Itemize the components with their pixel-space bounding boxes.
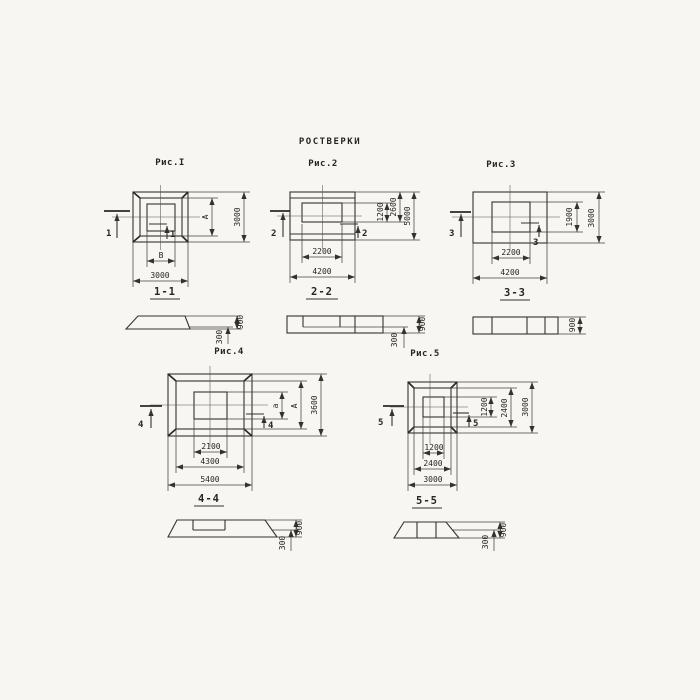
fig1-section-view: 1-1 900 300: [126, 286, 245, 344]
fig2-plan: [277, 185, 362, 249]
cut-label: 5: [473, 419, 478, 429]
fig2-section-view: 2-2 900 300: [287, 286, 427, 348]
chamfer-line: [133, 236, 140, 242]
chamfer-line: [408, 382, 414, 388]
chamfer-line: [408, 427, 414, 433]
fig1-title: Рис.I: [155, 158, 185, 168]
dim-value: 3000: [521, 397, 530, 416]
section-label: 5-5: [416, 495, 438, 507]
dim-value: 5400: [200, 475, 219, 484]
cut-label: 3: [449, 229, 454, 239]
fig2-cut-mark-inner: 2: [340, 224, 367, 239]
chamfer-line: [244, 429, 252, 436]
fig5-section-view: 5-5 900 300: [394, 495, 508, 551]
fig5-outer-contour: [408, 382, 457, 433]
dim-value: 1200: [376, 202, 385, 221]
dim-value: 3600: [310, 395, 319, 414]
cut-label: 2: [271, 229, 276, 239]
dim-value: 1900: [565, 207, 574, 226]
dim-value: А: [201, 214, 210, 219]
cut-label: 4: [268, 421, 274, 431]
fig4-dim-inner-width: 2100: [194, 419, 227, 458]
chamfer-line: [182, 192, 188, 198]
dim-value: 900: [499, 523, 508, 538]
dim-value: 1200: [480, 397, 489, 416]
dim-value: 4200: [500, 268, 519, 277]
dim-value: 2400: [423, 459, 442, 468]
dim-value: 900: [418, 317, 427, 332]
chamfer-line: [133, 192, 140, 198]
cut-label: 1: [106, 229, 111, 239]
dim-value: 3000: [233, 207, 242, 226]
chamfer-line: [168, 429, 176, 436]
figure-1: Рис.I 1 1 А: [104, 158, 250, 344]
fig4-cut-mark-inner: 4: [246, 414, 274, 431]
fig3-title: Рис.3: [486, 160, 516, 170]
dim-value: 900: [236, 315, 245, 330]
fig5-plan: [390, 374, 468, 444]
dim-value: 4300: [200, 457, 219, 466]
figure-2: Рис.2 2 2 1200 2600: [270, 159, 427, 348]
chamfer-line: [451, 427, 457, 433]
dim-value: 300: [481, 535, 490, 550]
fig3-dim-inner-width: 2200: [492, 232, 530, 264]
figure-5: Рис.5 5 5 1200: [378, 349, 538, 551]
fig4-cut-mark-left: 4: [138, 406, 162, 430]
dim-value: 4200: [312, 267, 331, 276]
fig2-dim-inner-width: 2200: [302, 224, 342, 263]
fig5-cut-mark-left: 5: [378, 406, 404, 428]
section-profile: [287, 316, 383, 333]
fig5-dim-inner-width: 1200: [423, 417, 444, 459]
fig4-section-view: 4-4 900 300: [168, 493, 304, 551]
dim-value: 300: [390, 333, 399, 348]
cut-label: 4: [138, 420, 144, 430]
section-profile: [168, 520, 277, 537]
dim-value: 3000: [150, 271, 169, 280]
dim-value: 2200: [312, 247, 331, 256]
fig5-title: Рис.5: [410, 349, 440, 359]
fig5-edge-band: [414, 388, 451, 427]
scanned-drawing-page: РОСТВЕРКИ Рис.I 1 1 А: [0, 0, 700, 700]
fig4-dim-inner-height: а: [227, 392, 288, 419]
fig2-cut-mark-left: 2: [270, 211, 290, 239]
dim-value: 5000: [403, 206, 412, 225]
dim-value: 300: [278, 536, 287, 551]
section-profile: [394, 522, 459, 538]
fig1-cut-mark-inner: 1: [149, 224, 175, 240]
fig3-dim-outer-height: 3000: [547, 192, 605, 243]
section-label: 2-2: [311, 286, 333, 298]
fig3-plan: [452, 185, 560, 250]
chamfer-line: [182, 236, 188, 242]
fig4-recess-opening: [194, 392, 227, 419]
dim-value: 2400: [500, 398, 509, 417]
section-profile: [126, 316, 190, 329]
fig2-recess-opening: [302, 203, 342, 222]
dim-value: 3000: [423, 475, 442, 484]
chamfer-line: [168, 374, 176, 381]
chamfer-line: [451, 382, 457, 388]
section-label: 4-4: [198, 493, 220, 505]
cut-label: 2: [362, 229, 367, 239]
cut-label: 5: [378, 418, 383, 428]
dim-value: 3000: [587, 208, 596, 227]
dim-value: 2600: [389, 197, 398, 216]
fig3-cut-mark-left: 3: [449, 212, 471, 239]
fig1-recess-opening: [147, 204, 175, 231]
cut-label: 3: [533, 238, 538, 248]
figure-4: Рис.4 4 4 а: [138, 347, 327, 551]
dim-value: 1200: [424, 443, 443, 452]
dim-value: 2200: [501, 248, 520, 257]
cut-label: 1: [170, 230, 175, 240]
fig4-plan: [150, 366, 268, 447]
section-label: 3-3: [504, 287, 526, 299]
page-title: РОСТВЕРКИ: [299, 137, 361, 147]
drawing-canvas: РОСТВЕРКИ Рис.I 1 1 А: [0, 0, 700, 700]
section-label: 1-1: [154, 286, 176, 298]
fig4-title: Рис.4: [214, 347, 244, 357]
dim-value: 300: [215, 330, 224, 345]
dim-value: А: [290, 403, 299, 408]
dim-value: В: [159, 251, 164, 260]
dim-value: 900: [568, 318, 577, 333]
dim-value: 900: [295, 521, 304, 536]
fig2-title: Рис.2: [308, 159, 338, 169]
chamfer-line: [244, 374, 252, 381]
dim-value: а: [271, 403, 280, 408]
fig1-plan: [112, 185, 200, 250]
figure-3: Рис.3 3 3 1900 3000: [449, 160, 605, 334]
fig3-section-view: 3-3 900: [473, 287, 586, 334]
dim-value: 2100: [201, 442, 220, 451]
fig1-cut-mark-left: 1: [104, 211, 130, 239]
